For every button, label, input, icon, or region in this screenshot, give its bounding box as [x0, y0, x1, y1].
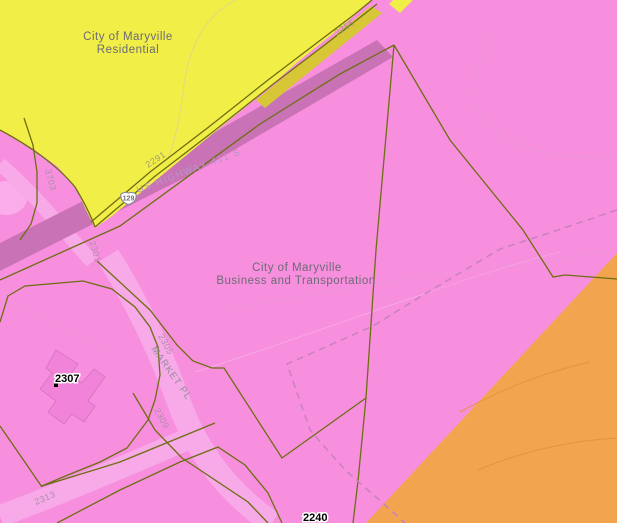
address-label-2240: 2240 — [303, 512, 327, 523]
map-svg: 129 US HIGHWAY 411 S MARKET PL 2291 2255… — [0, 0, 617, 523]
shield-number: 129 — [123, 196, 135, 203]
address-label-2307: 2307 — [55, 373, 79, 385]
zone-label-line1: City of Maryville — [83, 31, 173, 43]
zone-label-line1: City of Maryville — [252, 262, 342, 274]
zone-label-line2: Residential — [97, 44, 159, 56]
zoning-map-canvas[interactable]: 129 US HIGHWAY 411 S MARKET PL 2291 2255… — [0, 0, 617, 523]
zone-label-line2: Business and Transportation — [216, 275, 375, 287]
